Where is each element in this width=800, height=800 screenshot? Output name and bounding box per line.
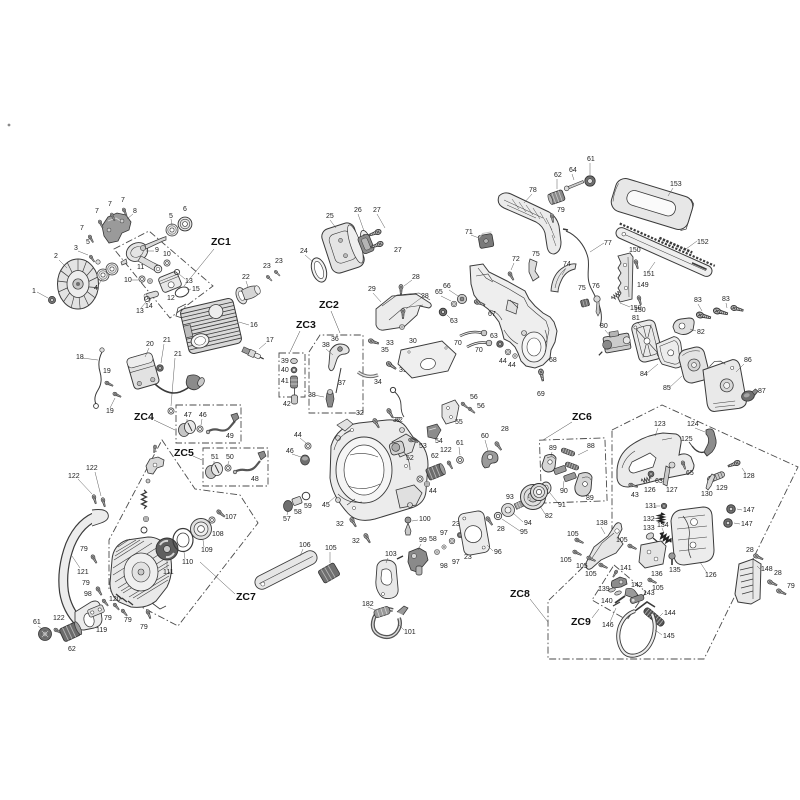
svg-text:82: 82: [545, 513, 553, 520]
svg-text:95: 95: [520, 529, 528, 536]
svg-text:7: 7: [80, 225, 84, 232]
svg-text:23: 23: [263, 263, 271, 270]
svg-text:74: 74: [563, 261, 571, 268]
svg-text:94: 94: [524, 520, 532, 527]
svg-text:27: 27: [394, 247, 402, 254]
svg-text:88: 88: [587, 443, 595, 450]
svg-text:123: 123: [654, 421, 666, 428]
svg-text:126: 126: [644, 487, 656, 494]
svg-text:52: 52: [406, 455, 414, 462]
svg-text:120: 120: [109, 596, 121, 603]
svg-text:78: 78: [529, 187, 537, 194]
svg-text:12: 12: [167, 295, 175, 302]
svg-text:106: 106: [299, 542, 311, 549]
svg-text:105: 105: [325, 545, 337, 552]
svg-text:79: 79: [80, 546, 88, 553]
svg-text:28: 28: [501, 426, 509, 433]
svg-text:9: 9: [155, 247, 159, 254]
svg-text:3: 3: [74, 245, 78, 252]
svg-text:138: 138: [596, 520, 608, 527]
svg-text:5: 5: [169, 213, 173, 220]
svg-text:44: 44: [499, 358, 507, 365]
svg-text:98: 98: [84, 591, 92, 598]
svg-text:2: 2: [54, 253, 58, 260]
svg-text:68: 68: [549, 357, 557, 364]
svg-text:132: 132: [643, 516, 655, 523]
svg-text:7: 7: [108, 201, 112, 208]
svg-text:127: 127: [666, 487, 678, 494]
svg-text:42: 42: [283, 401, 291, 408]
svg-text:61: 61: [456, 440, 464, 447]
svg-text:50: 50: [226, 454, 234, 461]
svg-text:89: 89: [549, 445, 557, 452]
svg-text:62: 62: [431, 453, 439, 460]
svg-text:89: 89: [586, 495, 594, 502]
svg-text:63: 63: [655, 478, 663, 485]
svg-text:40: 40: [281, 367, 289, 374]
svg-text:69: 69: [537, 391, 545, 398]
svg-text:79: 79: [82, 580, 90, 587]
svg-text:107: 107: [225, 514, 237, 521]
svg-text:109: 109: [201, 547, 213, 554]
svg-text:17: 17: [266, 337, 274, 344]
svg-text:62: 62: [554, 172, 562, 179]
svg-text:103: 103: [385, 551, 397, 558]
svg-text:43: 43: [631, 492, 639, 499]
svg-text:135: 135: [669, 567, 681, 574]
svg-text:33: 33: [386, 340, 394, 347]
svg-text:15: 15: [192, 286, 200, 293]
svg-text:7: 7: [121, 197, 125, 204]
svg-text:90: 90: [560, 488, 568, 495]
svg-text:91: 91: [558, 502, 566, 509]
svg-text:44: 44: [429, 488, 437, 495]
svg-text:53: 53: [419, 443, 427, 450]
svg-text:16: 16: [250, 322, 258, 329]
svg-text:23: 23: [275, 258, 283, 265]
svg-text:22: 22: [242, 274, 250, 281]
svg-text:21: 21: [163, 337, 171, 344]
svg-text:44: 44: [508, 362, 516, 369]
svg-text:182: 182: [362, 601, 374, 608]
svg-text:30: 30: [409, 338, 417, 345]
svg-text:122: 122: [68, 473, 80, 480]
svg-text:101: 101: [404, 629, 416, 636]
svg-text:96: 96: [494, 549, 502, 556]
svg-text:28: 28: [497, 526, 505, 533]
svg-text:150: 150: [629, 247, 641, 254]
svg-text:108: 108: [212, 531, 224, 538]
svg-text:56: 56: [470, 394, 478, 401]
svg-text:122: 122: [440, 447, 452, 454]
svg-text:125: 125: [681, 436, 693, 443]
svg-text:85: 85: [663, 385, 671, 392]
svg-text:81: 81: [632, 315, 640, 322]
svg-text:76: 76: [592, 283, 600, 290]
svg-text:147: 147: [741, 521, 753, 528]
svg-text:139: 139: [598, 586, 610, 593]
svg-text:100: 100: [419, 516, 431, 523]
svg-text:ZC2: ZC2: [319, 299, 339, 311]
svg-text:79: 79: [140, 624, 148, 631]
svg-text:65: 65: [686, 470, 694, 477]
svg-text:58: 58: [429, 536, 437, 543]
svg-text:58: 58: [294, 509, 302, 516]
svg-text:ZC5: ZC5: [174, 447, 194, 459]
svg-text:70: 70: [454, 340, 462, 347]
svg-text:131: 131: [645, 503, 657, 510]
svg-text:99: 99: [419, 537, 427, 544]
svg-text:105: 105: [560, 557, 572, 564]
svg-text:79: 79: [557, 207, 565, 214]
svg-text:77: 77: [604, 240, 612, 247]
svg-text:64: 64: [569, 167, 577, 174]
svg-text:93: 93: [506, 494, 514, 501]
svg-text:71: 71: [465, 229, 473, 236]
svg-text:25: 25: [326, 213, 334, 220]
svg-text:75: 75: [532, 251, 540, 258]
svg-text:66: 66: [443, 283, 451, 290]
svg-text:ZC1: ZC1: [211, 236, 231, 248]
svg-text:61: 61: [587, 156, 595, 163]
svg-text:4: 4: [94, 285, 98, 292]
svg-text:1: 1: [32, 288, 36, 295]
svg-text:87: 87: [758, 388, 766, 395]
svg-text:143: 143: [643, 590, 655, 597]
svg-text:ZC6: ZC6: [572, 411, 592, 423]
svg-text:134: 134: [657, 522, 669, 529]
svg-text:46: 46: [199, 412, 207, 419]
svg-text:86: 86: [744, 357, 752, 364]
svg-text:82: 82: [697, 329, 705, 336]
svg-text:32: 32: [352, 538, 360, 545]
svg-text:148: 148: [761, 566, 773, 573]
svg-text:144: 144: [664, 610, 676, 617]
svg-text:122: 122: [53, 615, 65, 622]
svg-text:105: 105: [585, 571, 597, 578]
svg-text:105: 105: [616, 537, 628, 544]
svg-text:ZC7: ZC7: [236, 591, 256, 603]
svg-text:13: 13: [185, 278, 193, 285]
svg-text:28: 28: [746, 547, 754, 554]
svg-text:67: 67: [488, 311, 496, 318]
svg-text:48: 48: [251, 476, 259, 483]
svg-text:119: 119: [96, 627, 107, 634]
svg-text:105: 105: [567, 531, 579, 538]
svg-text:149: 149: [637, 282, 649, 289]
svg-text:80: 80: [600, 323, 608, 330]
svg-text:26: 26: [354, 207, 362, 214]
svg-text:41: 41: [281, 378, 289, 385]
svg-text:32: 32: [393, 417, 401, 424]
svg-text:19: 19: [103, 368, 111, 375]
svg-text:97: 97: [452, 559, 460, 566]
svg-text:84: 84: [640, 371, 648, 378]
svg-text:62: 62: [68, 646, 76, 653]
svg-text:79: 79: [787, 583, 795, 590]
svg-text:150: 150: [630, 305, 642, 312]
svg-text:32: 32: [356, 410, 364, 417]
svg-text:111: 111: [163, 569, 174, 576]
svg-text:146: 146: [602, 622, 614, 629]
svg-text:37: 37: [338, 380, 346, 387]
svg-text:19: 19: [106, 408, 114, 415]
svg-text:18: 18: [76, 354, 84, 361]
svg-text:49: 49: [226, 433, 234, 440]
svg-text:141: 141: [620, 565, 632, 572]
svg-text:44: 44: [294, 432, 302, 439]
svg-text:21: 21: [174, 351, 182, 358]
svg-text:45: 45: [322, 502, 330, 509]
svg-text:147: 147: [743, 507, 755, 514]
svg-text:133: 133: [643, 525, 655, 532]
svg-text:83: 83: [694, 297, 702, 304]
svg-text:83: 83: [722, 296, 730, 303]
svg-text:47: 47: [184, 412, 192, 419]
svg-text:79: 79: [104, 615, 112, 622]
svg-text:32: 32: [336, 521, 344, 528]
svg-text:140: 140: [601, 598, 613, 605]
svg-text:29: 29: [368, 286, 376, 293]
svg-text:128: 128: [743, 473, 755, 480]
svg-text:14: 14: [145, 303, 153, 310]
svg-text:54: 54: [435, 438, 443, 445]
svg-text:20: 20: [146, 341, 154, 348]
svg-text:98: 98: [440, 563, 448, 570]
svg-text:151: 151: [643, 271, 655, 278]
svg-text:27: 27: [373, 207, 381, 214]
svg-text:6: 6: [183, 206, 187, 213]
svg-text:57: 57: [283, 516, 291, 523]
svg-text:130: 130: [701, 491, 713, 498]
svg-text:ZC4: ZC4: [134, 411, 154, 423]
svg-text:97: 97: [440, 530, 448, 537]
svg-text:5: 5: [86, 239, 90, 246]
svg-text:10: 10: [124, 277, 132, 284]
svg-text:75: 75: [578, 285, 586, 292]
svg-text:63: 63: [490, 333, 498, 340]
svg-text:8: 8: [133, 208, 137, 215]
svg-text:10: 10: [163, 251, 171, 258]
svg-text:46: 46: [286, 448, 294, 455]
svg-text:11: 11: [137, 264, 144, 271]
svg-text:60: 60: [481, 433, 489, 440]
svg-text:55: 55: [455, 419, 463, 426]
svg-text:28: 28: [412, 274, 420, 281]
svg-text:38: 38: [322, 342, 330, 349]
svg-text:28: 28: [421, 293, 429, 300]
svg-text:79: 79: [124, 617, 132, 624]
svg-text:105: 105: [576, 563, 588, 570]
svg-text:72: 72: [512, 256, 520, 263]
svg-text:65: 65: [435, 289, 443, 296]
svg-text:124: 124: [687, 421, 699, 428]
svg-text:28: 28: [774, 570, 782, 577]
svg-text:110: 110: [182, 559, 193, 566]
svg-text:70: 70: [475, 347, 483, 354]
svg-text:152: 152: [697, 239, 709, 246]
svg-text:39: 39: [281, 358, 289, 365]
svg-text:61: 61: [33, 619, 41, 626]
svg-text:34: 34: [374, 379, 382, 386]
svg-text:153: 153: [670, 181, 682, 188]
svg-text:129: 129: [716, 485, 728, 492]
svg-text:7: 7: [95, 208, 99, 215]
svg-text:122: 122: [86, 465, 98, 472]
svg-text:121: 121: [77, 569, 89, 576]
svg-text:38: 38: [308, 392, 316, 399]
svg-text:56: 56: [477, 403, 485, 410]
svg-text:36: 36: [331, 336, 339, 343]
svg-text:63: 63: [450, 318, 458, 325]
svg-text:145: 145: [663, 633, 675, 640]
svg-text:136: 136: [651, 571, 663, 578]
svg-text:ZC8: ZC8: [510, 588, 530, 600]
svg-text:142: 142: [631, 582, 643, 589]
svg-text:ZC3: ZC3: [296, 319, 316, 331]
svg-text:51: 51: [211, 454, 219, 461]
svg-text:ZC9: ZC9: [571, 616, 591, 628]
svg-text:13: 13: [136, 308, 144, 315]
svg-text:24: 24: [300, 248, 308, 255]
svg-text:35: 35: [381, 347, 389, 354]
svg-text:59: 59: [304, 503, 312, 510]
